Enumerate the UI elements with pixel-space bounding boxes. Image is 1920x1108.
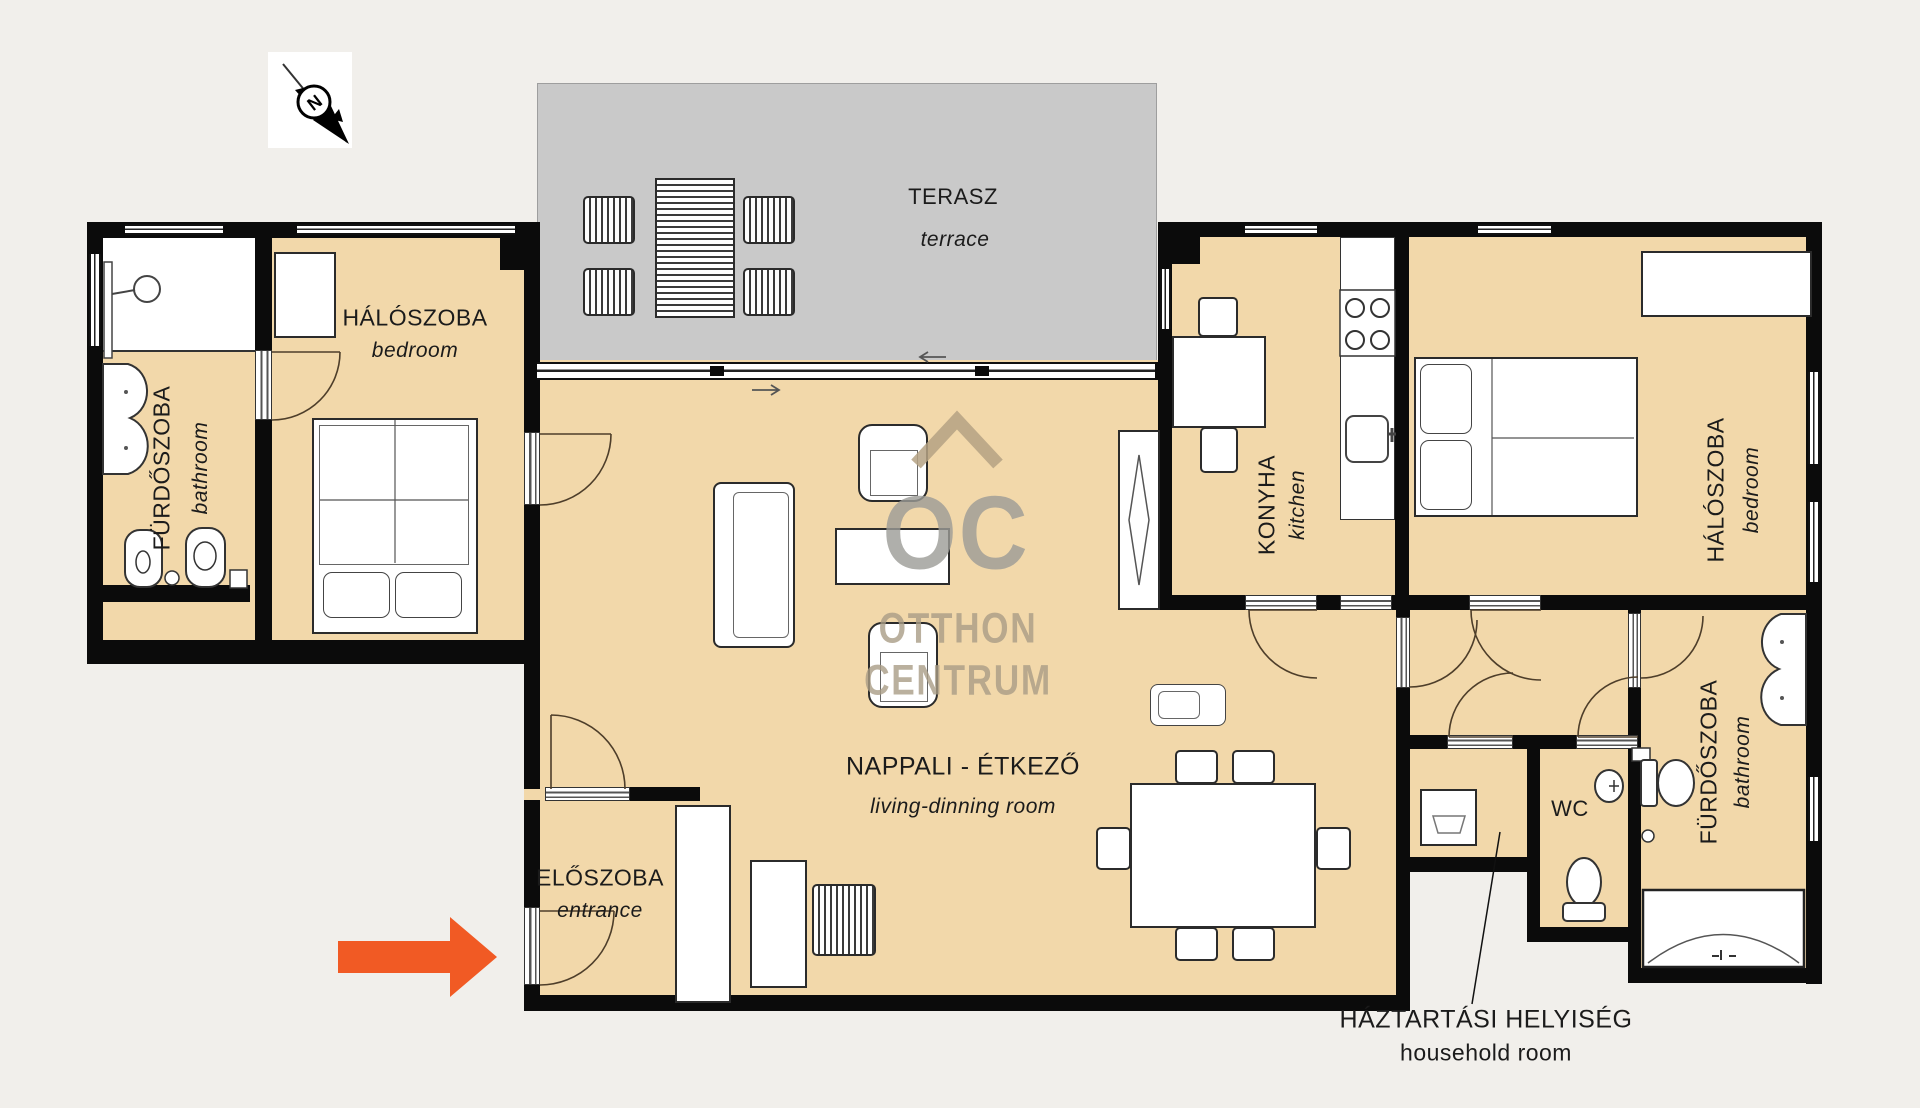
compass-icon: N: [268, 52, 352, 148]
window: [1160, 269, 1171, 329]
sofa-cushions: [733, 492, 789, 638]
desk-icon: [750, 860, 807, 988]
bedroom-left-label-en: bedroom: [372, 339, 458, 363]
tv-cabinet-icon: [1118, 430, 1160, 610]
terrace-chair-icon: [743, 196, 795, 244]
kitchen-chair-icon: [1198, 297, 1238, 337]
wardrobe-icon: [1641, 251, 1812, 317]
wall-segment: [87, 585, 250, 602]
wall-segment: [1527, 749, 1540, 941]
bathroom-left-label-en: bathroom: [189, 422, 213, 515]
living-dining-label: NAPPALI - ÉTKEZŐ: [846, 753, 1080, 782]
closet-icon: [675, 805, 731, 1003]
mattress: [319, 425, 469, 565]
wall-segment: [1527, 927, 1641, 942]
wall-segment: [87, 640, 540, 664]
kitchen-label: KONYHA: [1254, 455, 1281, 555]
washing-machine-icon: [1420, 789, 1477, 846]
wall-segment: [1396, 857, 1540, 872]
kitchen-counter: [1340, 237, 1395, 520]
entrance-label: ELŐSZOBA: [536, 865, 664, 892]
wall-segment: [255, 238, 272, 350]
terrace-label-en: terrace: [921, 228, 990, 252]
door: [1628, 613, 1641, 688]
terrace-chair-icon: [583, 268, 635, 316]
terrace-chair-icon: [583, 196, 635, 244]
bathroom-right-floor: [1628, 593, 1822, 982]
window: [1808, 372, 1820, 464]
door: [1396, 617, 1410, 688]
entrance-arrow-icon: [338, 917, 497, 997]
wardrobe-icon: [274, 252, 336, 338]
entrance-label-en: entrance: [557, 899, 643, 923]
dining-chair-icon: [1316, 827, 1351, 870]
wc-label: WC: [1551, 796, 1589, 822]
wall-segment: [524, 995, 1410, 1011]
bedroom-left-label: HÁLÓSZOBA: [342, 305, 487, 332]
terrace-table-icon: [655, 178, 735, 318]
window: [89, 254, 101, 346]
terrace-chair-icon: [743, 268, 795, 316]
living-dining-label-en: living-dinning room: [870, 795, 1056, 819]
pillow-icon: [1420, 440, 1472, 510]
watermark-word1: OTTHON: [879, 605, 1038, 654]
pillow-icon: [1420, 364, 1472, 434]
kitchen-table-icon: [1172, 336, 1266, 428]
window: [1808, 502, 1820, 582]
dining-chair-icon: [1175, 750, 1218, 784]
window: [1478, 224, 1551, 235]
window: [297, 224, 515, 235]
desk-chair-icon: [812, 884, 876, 956]
door: [524, 432, 540, 505]
wall-segment: [630, 787, 700, 801]
door: [1340, 595, 1392, 610]
dining-table-icon: [1130, 783, 1316, 928]
pillow-icon: [395, 572, 462, 618]
door: [1245, 595, 1317, 610]
dining-chair-icon: [1232, 750, 1275, 784]
household-label: HÁZTARTÁSI HELYISÉG: [1340, 1006, 1633, 1035]
pillow-icon: [323, 572, 390, 618]
terrace-sliding-window: [537, 362, 1155, 380]
wall-segment: [524, 505, 540, 789]
cabinet-detail: [1158, 691, 1200, 719]
terrace-label: TERASZ: [908, 184, 998, 210]
watermark-word2: CENTRUM: [864, 657, 1052, 706]
door: [1469, 595, 1541, 610]
shower-area: [103, 238, 255, 352]
wall-segment: [1628, 968, 1822, 983]
bedroom-right-label-en: bedroom: [1740, 447, 1764, 533]
window: [125, 224, 223, 235]
dining-chair-icon: [1096, 827, 1131, 870]
dining-chair-icon: [1175, 927, 1218, 961]
wc-floor: [1527, 733, 1641, 940]
window-mullion: [975, 366, 989, 376]
wall-segment: [524, 222, 540, 432]
door: [255, 350, 272, 420]
bathroom-right-label-en: bathroom: [1731, 716, 1755, 809]
kitchen-chair-icon: [1200, 427, 1238, 473]
wall-segment: [255, 420, 272, 642]
wall-segment: [1395, 222, 1409, 608]
door: [545, 787, 630, 801]
compass-north-label: N: [303, 91, 326, 115]
household-label-en: household room: [1400, 1040, 1572, 1067]
dining-chair-icon: [1232, 927, 1275, 961]
kitchen-label-en: kitchen: [1286, 470, 1310, 540]
door: [1576, 735, 1638, 749]
bathroom-right-label: FÜRDŐSZOBA: [1696, 680, 1723, 845]
bedroom-right-label: HÁLÓSZOBA: [1703, 417, 1730, 562]
window: [1808, 777, 1820, 841]
entrance-door: [524, 907, 540, 985]
window: [1245, 224, 1317, 235]
watermark-monogram: OC: [882, 475, 1029, 594]
window-mullion: [710, 366, 724, 376]
bathroom-left-label: FÜRDŐSZOBA: [149, 386, 176, 551]
floor-plan: N: [0, 0, 1920, 1108]
door: [1447, 735, 1513, 749]
